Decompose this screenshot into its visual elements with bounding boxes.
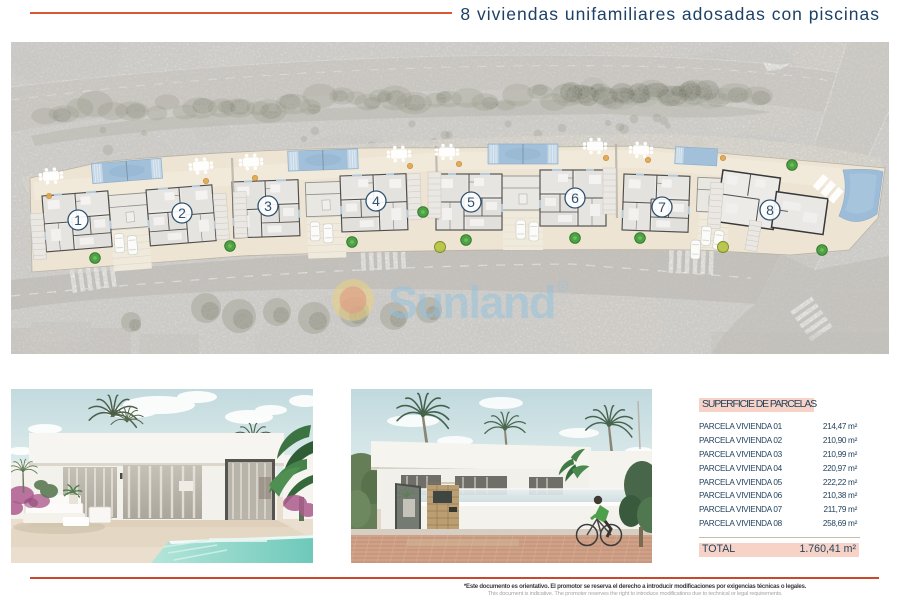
svg-text:6: 6 [571, 190, 579, 206]
svg-text:1: 1 [74, 212, 82, 228]
svg-text:R: R [560, 284, 565, 291]
svg-text:Sunland: Sunland [388, 277, 555, 328]
svg-text:4: 4 [372, 193, 380, 209]
svg-text:8: 8 [766, 202, 774, 218]
svg-text:5: 5 [467, 194, 475, 210]
svg-text:2: 2 [178, 205, 186, 221]
svg-text:7: 7 [658, 199, 666, 215]
svg-text:3: 3 [264, 198, 272, 214]
